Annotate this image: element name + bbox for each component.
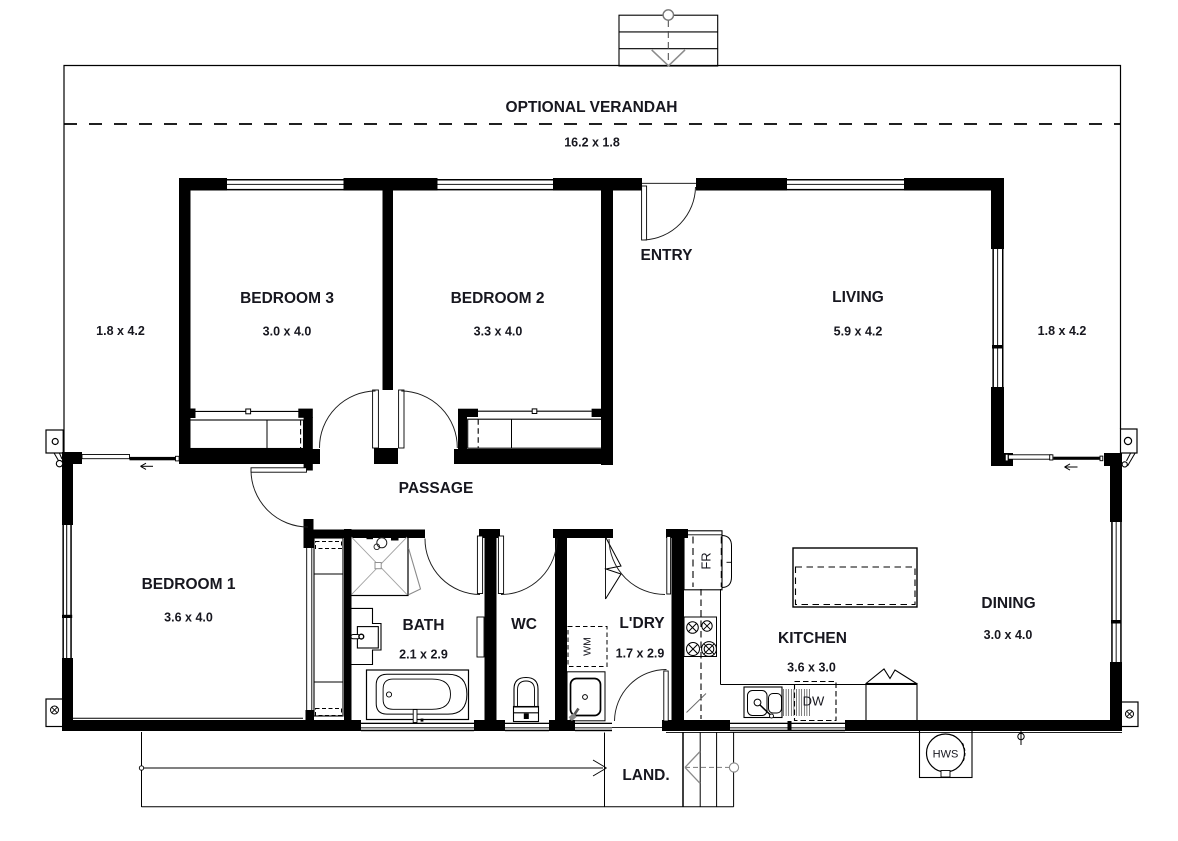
- svg-text:PASSAGE: PASSAGE: [399, 480, 474, 497]
- svg-text:WM: WM: [582, 637, 594, 656]
- svg-text:ENTRY: ENTRY: [641, 247, 694, 264]
- svg-text:3.0 x 4.0: 3.0 x 4.0: [984, 628, 1033, 642]
- svg-text:5.9 x 4.2: 5.9 x 4.2: [834, 325, 883, 339]
- svg-text:3.6 x 3.0: 3.6 x 3.0: [787, 661, 836, 675]
- svg-text:LAND.: LAND.: [622, 767, 669, 784]
- svg-text:BEDROOM 2: BEDROOM 2: [451, 290, 545, 307]
- svg-text:DINING: DINING: [981, 595, 1035, 612]
- svg-text:2.1 x 2.9: 2.1 x 2.9: [399, 648, 448, 662]
- svg-text:3.6 x 4.0: 3.6 x 4.0: [164, 611, 213, 625]
- svg-text:1.8 x 4.2: 1.8 x 4.2: [1038, 324, 1087, 338]
- svg-text:L'DRY: L'DRY: [619, 615, 665, 632]
- svg-text:1.8 x 4.2: 1.8 x 4.2: [96, 324, 145, 338]
- svg-text:DW: DW: [803, 694, 825, 709]
- svg-text:3.3 x 4.0: 3.3 x 4.0: [474, 325, 523, 339]
- svg-text:1.7 x 2.9: 1.7 x 2.9: [616, 647, 665, 661]
- svg-text:16.2 x 1.8: 16.2 x 1.8: [564, 136, 620, 150]
- svg-text:WC: WC: [511, 616, 537, 633]
- svg-text:BATH: BATH: [403, 617, 445, 634]
- svg-text:3.0 x 4.0: 3.0 x 4.0: [263, 325, 312, 339]
- svg-text:KITCHEN: KITCHEN: [778, 630, 847, 647]
- svg-text:BEDROOM 3: BEDROOM 3: [240, 290, 334, 307]
- svg-text:HWS: HWS: [933, 749, 959, 761]
- svg-text:FR: FR: [699, 552, 714, 569]
- svg-text:OPTIONAL VERANDAH: OPTIONAL VERANDAH: [506, 99, 678, 116]
- svg-text:BEDROOM 1: BEDROOM 1: [142, 576, 236, 593]
- svg-text:LIVING: LIVING: [832, 289, 884, 306]
